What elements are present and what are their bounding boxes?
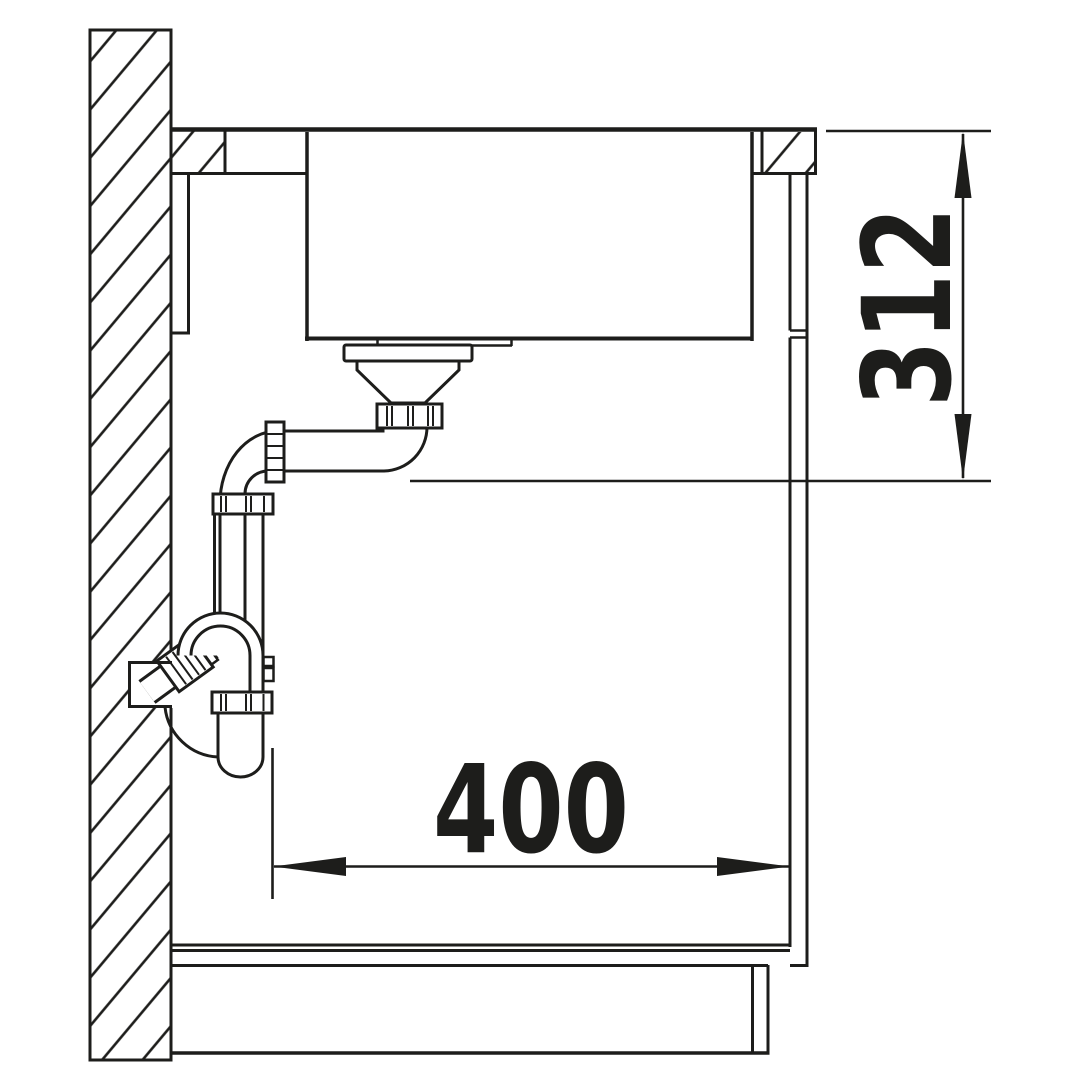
dimension-width-label: 400 xyxy=(433,739,629,881)
drawing-page: 312 400 xyxy=(0,0,1080,1080)
wall-section xyxy=(90,30,171,1060)
pipe-clip xyxy=(264,657,274,666)
dimension-height: 312 xyxy=(410,131,991,481)
arrowhead-right xyxy=(717,857,790,876)
arrowhead-down xyxy=(955,414,972,480)
countertop-right-section xyxy=(762,132,815,173)
strainer-flange xyxy=(344,345,472,361)
countertop-left-section xyxy=(171,131,225,173)
union-nut-horizontal xyxy=(266,422,284,482)
dimension-height-label: 312 xyxy=(837,207,979,407)
arrowhead-left xyxy=(273,857,346,876)
trap-body-curve xyxy=(165,707,218,757)
countertop xyxy=(171,129,817,174)
drain-plumbing xyxy=(128,345,472,777)
wall-batten xyxy=(171,173,190,333)
union-nut-upper xyxy=(213,494,273,514)
trap-dip-tube xyxy=(218,710,263,777)
cabinet-plinth xyxy=(171,965,770,1053)
sink-installation-section-drawing: 312 400 xyxy=(0,0,1080,1080)
sink-basin xyxy=(305,132,753,346)
dimension-width: 400 xyxy=(273,739,791,899)
cabinet xyxy=(171,173,809,1053)
drain-pipe-run xyxy=(220,424,427,622)
wall-hatch xyxy=(90,30,171,1060)
cabinet-side-panel xyxy=(790,173,809,966)
arrowhead-up xyxy=(955,132,972,198)
strainer-funnel xyxy=(357,360,459,403)
cabinet-floor xyxy=(171,945,790,966)
union-nut-lower xyxy=(212,692,272,713)
drain-strainer xyxy=(344,345,472,428)
